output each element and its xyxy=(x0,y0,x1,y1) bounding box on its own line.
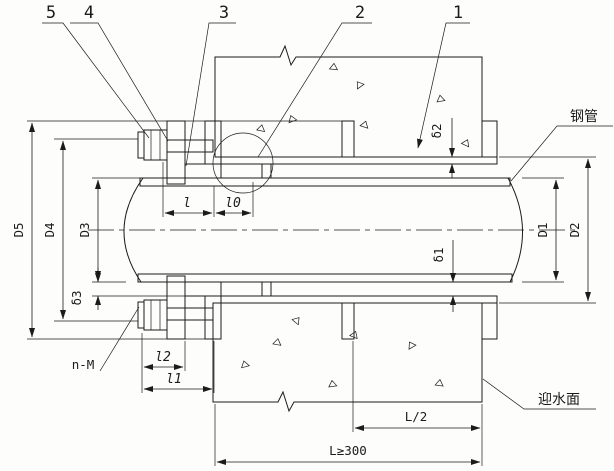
label-steel-pipe: 钢管 xyxy=(570,109,598,125)
dim-label-l1: l1 xyxy=(166,372,182,387)
label-water-facing-surface: 迎水面 xyxy=(538,392,580,408)
pipe-sleeve-section-drawing: D5 D4 D3 δ3 δ2 δ1 D1 D2 l l0 l2 l1 L/2 L… xyxy=(0,0,614,471)
callout-3: 3 xyxy=(219,3,229,23)
dim-label-D5: D5 xyxy=(11,222,26,237)
dim-label-l: l xyxy=(183,196,191,211)
paper-background xyxy=(0,0,614,471)
dim-label-half-wall: L/2 xyxy=(405,409,428,424)
dim-label-D3: D3 xyxy=(77,222,92,237)
callout-1: 1 xyxy=(453,3,463,23)
dim-label-D4: D4 xyxy=(42,222,57,237)
dim-label-l0: l0 xyxy=(225,196,241,211)
dim-label-D2: D2 xyxy=(567,222,582,237)
callout-4: 4 xyxy=(84,3,94,23)
technical-drawing-sheet: D5 D4 D3 δ3 δ2 δ1 D1 D2 l l0 l2 l1 L/2 L… xyxy=(0,0,614,471)
callout-2: 2 xyxy=(355,3,365,23)
dim-label-wall-min: L≥300 xyxy=(329,443,367,458)
label-bolt-count-size: n-M xyxy=(72,357,95,372)
callout-5: 5 xyxy=(46,3,56,23)
dim-label-D1: D1 xyxy=(535,222,550,237)
dim-label-l2: l2 xyxy=(155,350,171,365)
dim-label-delta3: δ3 xyxy=(69,290,84,305)
dim-label-delta1: δ1 xyxy=(431,247,446,262)
dim-label-delta2: δ2 xyxy=(429,123,444,138)
